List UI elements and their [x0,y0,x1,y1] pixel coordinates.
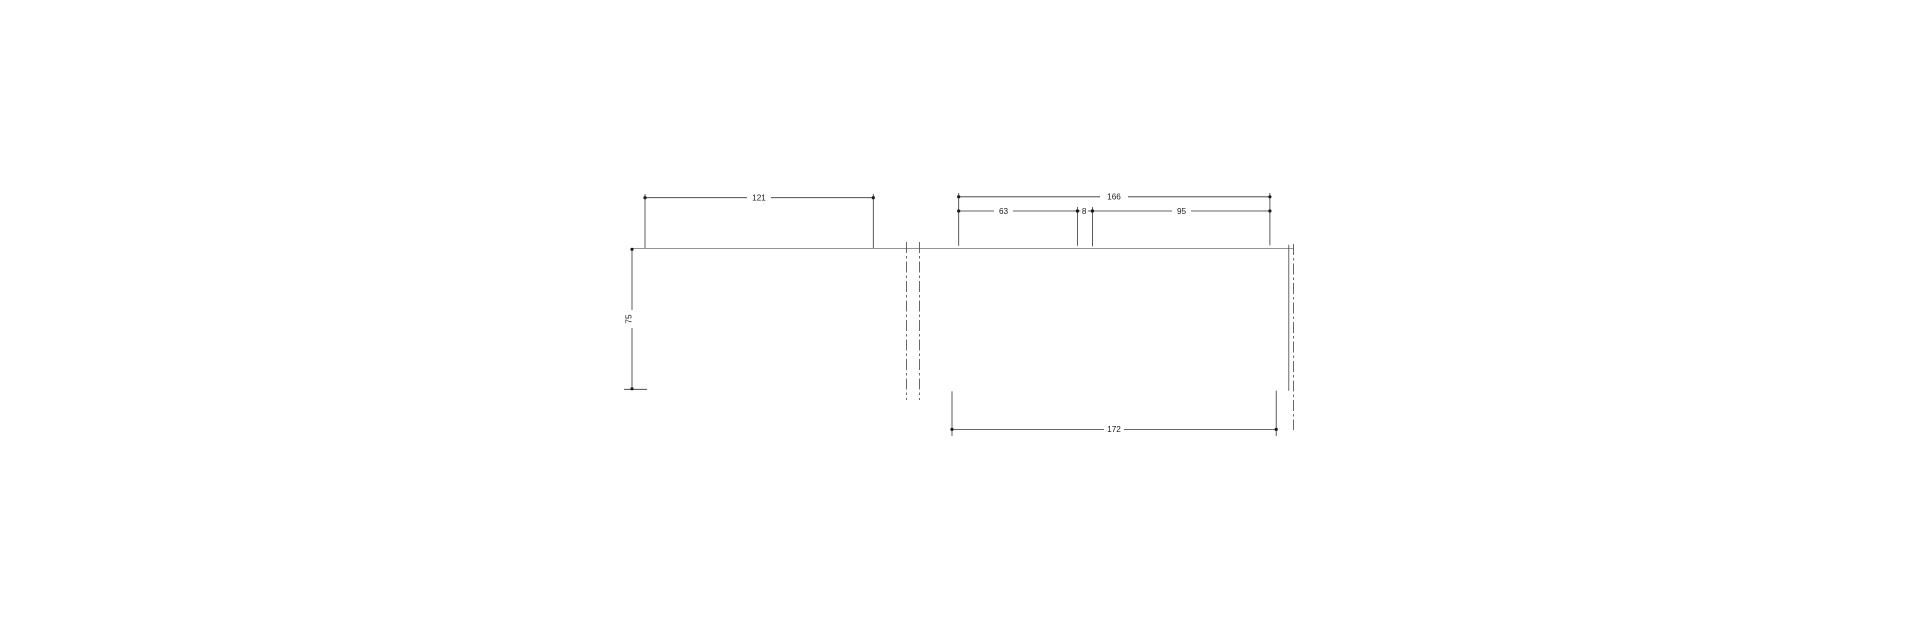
svg-text:63: 63 [999,207,1009,216]
svg-text:95: 95 [1177,207,1187,216]
svg-text:172: 172 [1107,425,1121,434]
svg-text:75: 75 [625,314,634,324]
svg-text:8: 8 [1082,207,1087,216]
svg-text:121: 121 [752,194,766,203]
svg-text:166: 166 [1107,193,1121,202]
